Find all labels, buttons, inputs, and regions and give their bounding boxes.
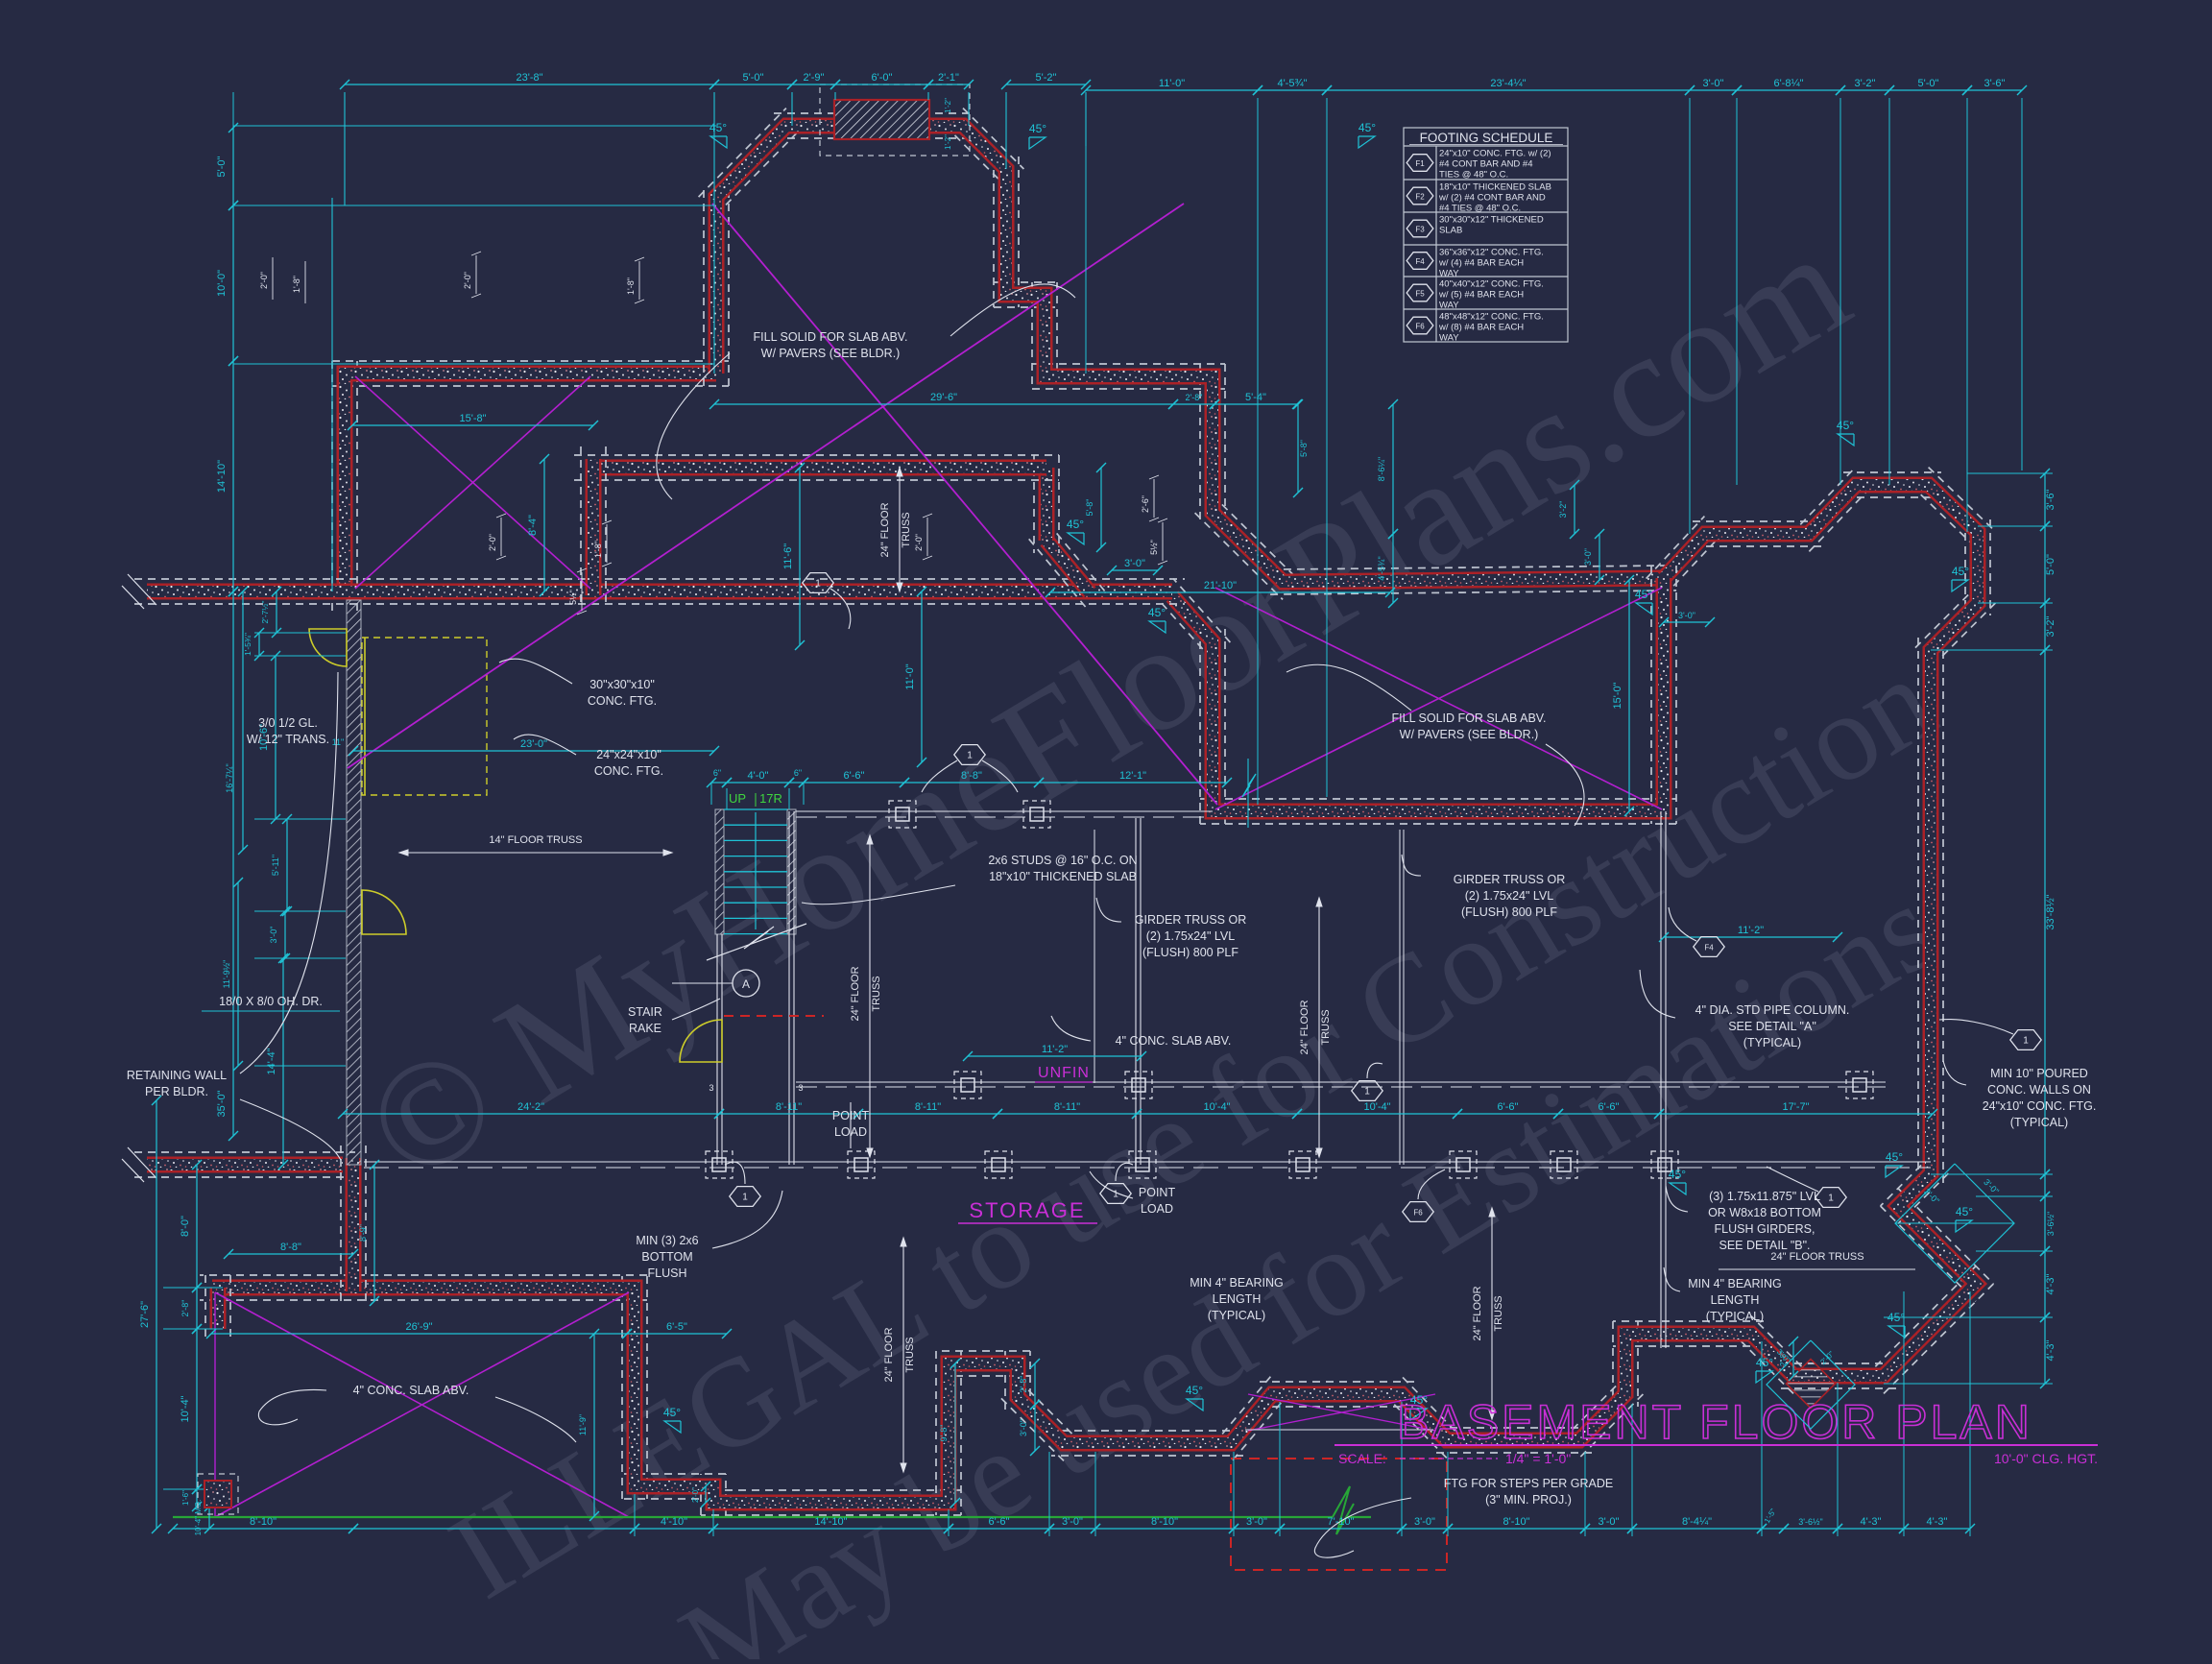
svg-text:TRUSS: TRUSS [871, 976, 882, 1011]
svg-text:8'-11": 8'-11" [1054, 1101, 1080, 1113]
svg-text:3'-6½": 3'-6½" [1798, 1517, 1822, 1527]
svg-text:14'-4": 14'-4" [266, 1048, 277, 1074]
svg-text:F3: F3 [1415, 226, 1425, 234]
svg-text:11'-0": 11'-0" [904, 663, 916, 689]
svg-text:SEE DETAIL "A": SEE DETAIL "A" [1728, 1020, 1816, 1033]
svg-text:WAY: WAY [1439, 301, 1459, 311]
svg-text:8'-8": 8'-8" [280, 1242, 301, 1253]
svg-text:3'-0": 3'-0" [1246, 1516, 1267, 1528]
svg-text:TIES @ 48" O.C.: TIES @ 48" O.C. [1439, 170, 1508, 181]
svg-text:12'-1": 12'-1" [1119, 770, 1146, 782]
svg-text:4'-5¾": 4'-5¾" [1277, 78, 1307, 89]
svg-text:6'-6": 6'-6" [1599, 1101, 1620, 1113]
svg-text:3'-2": 3'-2" [1558, 501, 1568, 518]
svg-text:8'-0": 8'-0" [180, 1216, 191, 1237]
svg-text:3'-0": 3'-0" [1678, 611, 1695, 620]
svg-text:PER BLDR.: PER BLDR. [145, 1085, 208, 1098]
svg-text:29'-6": 29'-6" [930, 392, 957, 403]
svg-text:RAKE: RAKE [629, 1022, 661, 1035]
svg-text:8'-8": 8'-8" [961, 770, 982, 782]
svg-text:11'-2": 11'-2" [1738, 925, 1764, 936]
svg-text:24" FLOOR: 24" FLOOR [1299, 1000, 1310, 1054]
svg-text:F4: F4 [1704, 944, 1714, 953]
svg-text:30"x30"x12" THICKENED: 30"x30"x12" THICKENED [1439, 215, 1544, 226]
svg-text:6'-5": 6'-5" [666, 1321, 687, 1333]
svg-text:(TYPICAL): (TYPICAL) [1706, 1310, 1764, 1323]
svg-text:FLUSH: FLUSH [648, 1266, 687, 1280]
svg-text:33'-8½": 33'-8½" [2045, 894, 2056, 929]
svg-text:23'-8": 23'-8" [516, 72, 542, 84]
svg-text:1'-8": 1'-8" [292, 276, 301, 293]
svg-text:4'-3": 4'-3" [1861, 1516, 1882, 1528]
svg-text:2'-8": 2'-8" [1186, 393, 1203, 402]
svg-text:GIRDER TRUSS OR: GIRDER TRUSS OR [1454, 873, 1565, 886]
svg-text:1: 1 [742, 1193, 748, 1203]
svg-text:45°: 45° [1358, 121, 1376, 134]
svg-text:5'-2": 5'-2" [1036, 72, 1057, 84]
svg-text:24" FLOOR: 24" FLOOR [1472, 1286, 1483, 1340]
svg-text:4'-3": 4'-3" [1927, 1516, 1948, 1528]
svg-text:TRUSS: TRUSS [901, 512, 912, 547]
svg-text:2'-0": 2'-0" [914, 534, 924, 551]
svg-text:1: 1 [2023, 1036, 2029, 1047]
svg-text:4" CONC. SLAB ABV.: 4" CONC. SLAB ABV. [353, 1384, 469, 1397]
svg-text:45°: 45° [1669, 1168, 1686, 1181]
svg-text:10'-0" CLG. HGT.: 10'-0" CLG. HGT. [1994, 1451, 2098, 1466]
svg-text:2'-8": 2'-8" [180, 1300, 190, 1317]
svg-text:W/ PAVERS (SEE BLDR.): W/ PAVERS (SEE BLDR.) [761, 347, 901, 360]
svg-text:8'-10": 8'-10" [250, 1516, 276, 1528]
svg-text:5'-0": 5'-0" [1918, 78, 1939, 89]
svg-text:45°: 45° [1186, 1384, 1203, 1397]
svg-text:24'-2": 24'-2" [517, 1101, 544, 1113]
svg-text:3'-0": 3'-0" [1583, 548, 1593, 566]
svg-text:1'-6": 1'-6" [181, 1490, 190, 1506]
svg-text:3'-0": 3'-0" [269, 927, 278, 944]
svg-text:14'-10": 14'-10" [216, 460, 228, 493]
svg-text:24"x10" CONC. FTG. w/ (2): 24"x10" CONC. FTG. w/ (2) [1439, 149, 1551, 159]
svg-text:4" CONC. SLAB ABV.: 4" CONC. SLAB ABV. [1116, 1034, 1232, 1048]
svg-text:F2: F2 [1415, 193, 1425, 202]
svg-text:9'-8": 9'-8" [939, 1425, 949, 1442]
svg-text:6'-6": 6'-6" [844, 770, 865, 782]
svg-text:2'-0": 2'-0" [463, 272, 472, 289]
svg-text:(TYPICAL): (TYPICAL) [1208, 1309, 1265, 1322]
svg-text:3'-0": 3'-0" [1124, 558, 1145, 569]
svg-text:3'-0": 3'-0" [1414, 1516, 1435, 1528]
svg-text:TRUSS: TRUSS [1493, 1295, 1504, 1331]
svg-text:LENGTH: LENGTH [1711, 1293, 1760, 1307]
svg-text:8'-6¼": 8'-6¼" [1377, 457, 1386, 481]
svg-text:6'-8¼": 6'-8¼" [1773, 78, 1803, 89]
svg-text:F1: F1 [1415, 159, 1425, 168]
svg-text:45°: 45° [1952, 565, 1969, 578]
svg-text:SCALE:: SCALE: [1338, 1451, 1386, 1466]
svg-text:A: A [742, 977, 750, 991]
svg-text:LENGTH: LENGTH [1213, 1292, 1262, 1306]
svg-text:36"x36"x12" CONC. FTG.: 36"x36"x12" CONC. FTG. [1439, 248, 1544, 258]
svg-text:5'-4": 5'-4" [1245, 392, 1266, 403]
svg-text:6'-6": 6'-6" [1498, 1101, 1519, 1113]
svg-text:MIN 4" BEARING: MIN 4" BEARING [1688, 1277, 1782, 1290]
svg-text:3'-0": 3'-0" [1019, 1419, 1028, 1436]
svg-text:3'-6": 3'-6" [2045, 489, 2056, 510]
svg-text:45°: 45° [1635, 588, 1652, 601]
svg-text:45°: 45° [1067, 518, 1084, 531]
svg-text:2'-0": 2'-0" [259, 272, 269, 289]
svg-text:UP: UP [729, 791, 746, 806]
svg-text:24" FLOOR: 24" FLOOR [879, 502, 891, 557]
svg-text:24" FLOOR: 24" FLOOR [883, 1327, 895, 1382]
svg-text:6'-0": 6'-0" [872, 72, 893, 84]
svg-text:10'-0": 10'-0" [216, 270, 228, 297]
svg-text:FLUSH GIRDERS,: FLUSH GIRDERS, [1715, 1222, 1815, 1236]
svg-text:10'-4": 10'-4" [1363, 1101, 1390, 1113]
svg-text:3/0 1/2 GL.: 3/0 1/2 GL. [258, 716, 318, 730]
svg-text:3'-0": 3'-0" [1062, 1516, 1083, 1528]
svg-text:WAY: WAY [1439, 333, 1459, 344]
svg-text:6": 6" [713, 768, 721, 778]
svg-text:40"x40"x12" CONC. FTG.: 40"x40"x12" CONC. FTG. [1439, 279, 1544, 290]
svg-text:11'-0": 11'-0" [1159, 78, 1185, 89]
svg-text:F6: F6 [1413, 1209, 1423, 1218]
svg-text:1: 1 [1364, 1087, 1370, 1097]
svg-text:SEE DETAIL "B".: SEE DETAIL "B". [1719, 1239, 1810, 1252]
svg-text:w/ (4) #4 BAR EACH: w/ (4) #4 BAR EACH [1438, 258, 1524, 269]
svg-text:4'-3": 4'-3" [2045, 1339, 2056, 1361]
svg-text:CONC. FTG.: CONC. FTG. [588, 694, 657, 708]
svg-text:1: 1 [967, 751, 973, 761]
svg-text:BASEMENT FLOOR PLAN: BASEMENT FLOOR PLAN [1397, 1395, 2032, 1449]
svg-text:18/0 X 8/0 OH. DR.: 18/0 X 8/0 OH. DR. [219, 995, 323, 1008]
svg-text:48"x48"x12" CONC. FTG.: 48"x48"x12" CONC. FTG. [1439, 312, 1544, 323]
svg-text:2x6 STUDS @ 16" O.C. ON: 2x6 STUDS @ 16" O.C. ON [988, 854, 1137, 867]
svg-text:8'-10": 8'-10" [1503, 1516, 1529, 1528]
svg-text:45°: 45° [709, 121, 727, 134]
svg-text:1'-8": 1'-8" [626, 277, 636, 295]
svg-text:3'-2": 3'-2" [2045, 615, 2056, 637]
svg-text:F4: F4 [1415, 257, 1425, 266]
svg-text:5½": 5½" [1149, 540, 1159, 555]
svg-text:6": 6" [794, 768, 802, 778]
svg-text:SLAB: SLAB [1439, 226, 1462, 236]
svg-text:CONC. FTG.: CONC. FTG. [594, 764, 663, 778]
svg-text:18"x10" THICKENED SLAB: 18"x10" THICKENED SLAB [1439, 182, 1551, 193]
svg-text:(FLUSH) 800 PLF: (FLUSH) 800 PLF [1461, 905, 1557, 919]
svg-text:w/ (2) #4 CONT BAR AND: w/ (2) #4 CONT BAR AND [1438, 193, 1546, 204]
svg-text:3'-2": 3'-2" [1855, 78, 1876, 89]
svg-text:(2) 1.75x24" LVL: (2) 1.75x24" LVL [1146, 929, 1236, 943]
svg-text:MIN 10" POURED: MIN 10" POURED [1990, 1067, 2088, 1080]
svg-text:23'-0": 23'-0" [520, 738, 547, 750]
svg-text:MIN (3) 2x6: MIN (3) 2x6 [636, 1234, 698, 1247]
svg-text:24" FLOOR TRUSS: 24" FLOOR TRUSS [1770, 1251, 1863, 1263]
svg-text:17'-7": 17'-7" [1782, 1101, 1809, 1113]
svg-text:14'-10": 14'-10" [814, 1516, 847, 1528]
svg-text:30"x30"x10": 30"x30"x10" [589, 678, 655, 691]
svg-text:5'-11": 5'-11" [271, 855, 280, 876]
svg-text:4'-0": 4'-0" [748, 770, 769, 782]
svg-text:2'-9": 2'-9" [804, 72, 825, 84]
svg-text:45°: 45° [1756, 1356, 1773, 1369]
svg-text:FILL SOLID FOR SLAB ABV.: FILL SOLID FOR SLAB ABV. [754, 330, 908, 344]
svg-text:45°: 45° [1029, 122, 1046, 135]
svg-text:27'-6": 27'-6" [139, 1301, 151, 1328]
svg-text:1: 1 [815, 579, 821, 590]
svg-text:1: 1 [1113, 1190, 1118, 1200]
svg-text:26'-9": 26'-9" [405, 1321, 432, 1333]
svg-text:45°: 45° [1148, 606, 1166, 619]
svg-text:8'-9": 8'-9" [358, 1224, 368, 1242]
svg-text:TRUSS: TRUSS [1320, 1009, 1332, 1045]
svg-text:8'-11": 8'-11" [776, 1101, 802, 1113]
svg-text:BOTTOM: BOTTOM [641, 1250, 692, 1264]
svg-text:4'-3": 4'-3" [2045, 1273, 2056, 1294]
svg-text:15'-8": 15'-8" [459, 413, 486, 424]
svg-text:7'-10": 7'-10" [1327, 1516, 1354, 1528]
svg-text:17R: 17R [759, 791, 782, 806]
svg-text:35'-0": 35'-0" [216, 1090, 228, 1117]
svg-text:STORAGE: STORAGE [969, 1198, 1085, 1222]
svg-text:(3) 1.75x11.875" LVL: (3) 1.75x11.875" LVL [1709, 1190, 1820, 1203]
svg-text:#4 CONT BAR AND #4: #4 CONT BAR AND #4 [1439, 159, 1533, 170]
svg-text:5'-8": 5'-8" [1299, 440, 1309, 457]
svg-text:4'-10": 4'-10" [661, 1516, 687, 1528]
svg-text:RETAINING WALL: RETAINING WALL [127, 1069, 227, 1082]
svg-text:2'-0": 2'-0" [691, 1487, 700, 1503]
svg-text:1'-2": 1'-2" [944, 134, 952, 150]
svg-text:2'-8": 2'-8" [1019, 1376, 1028, 1393]
svg-text:GIRDER TRUSS OR: GIRDER TRUSS OR [1135, 913, 1246, 927]
svg-text:2'-0": 2'-0" [488, 534, 497, 551]
svg-text:WAY: WAY [1439, 269, 1459, 279]
svg-text:1'-8": 1'-8" [593, 541, 603, 558]
svg-text:MIN 4" BEARING: MIN 4" BEARING [1190, 1276, 1284, 1290]
svg-text:45°: 45° [1886, 1150, 1903, 1164]
svg-text:1'-2": 1'-2" [944, 98, 952, 113]
svg-text:W/ 12" TRANS.: W/ 12" TRANS. [247, 733, 329, 746]
svg-text:OR W8x18 BOTTOM: OR W8x18 BOTTOM [1708, 1206, 1821, 1219]
svg-text:(3" MIN. PROJ.): (3" MIN. PROJ.) [1485, 1493, 1572, 1507]
svg-text:F5: F5 [1415, 290, 1425, 299]
svg-text:11'-9½": 11'-9½" [222, 960, 231, 989]
svg-text:3'-6½": 3'-6½" [2046, 1212, 2056, 1236]
svg-text:10'-4": 10'-4" [1203, 1101, 1230, 1113]
svg-text:24"x10" CONC. FTG.: 24"x10" CONC. FTG. [1983, 1099, 2097, 1113]
svg-text:5½": 5½" [568, 590, 578, 605]
svg-text:11'-6": 11'-6" [782, 543, 794, 569]
svg-text:8'-10": 8'-10" [1151, 1516, 1178, 1528]
svg-text:15'-0": 15'-0" [1612, 682, 1623, 709]
svg-text:6'-6": 6'-6" [989, 1516, 1010, 1528]
svg-text:#4 TIES @ 48" O.C.: #4 TIES @ 48" O.C. [1439, 204, 1521, 214]
svg-text:5'-8": 5'-8" [1085, 499, 1094, 517]
svg-text:3'-0": 3'-0" [1703, 78, 1724, 89]
svg-text:14" FLOOR TRUSS: 14" FLOOR TRUSS [489, 834, 582, 846]
svg-text:TRUSS: TRUSS [904, 1337, 916, 1372]
svg-text:w/ (5) #4 BAR EACH: w/ (5) #4 BAR EACH [1438, 290, 1524, 301]
svg-text:23'-4¼": 23'-4¼" [1490, 78, 1526, 89]
svg-text:24"x24"x10": 24"x24"x10" [596, 748, 661, 761]
svg-text:LOAD: LOAD [1141, 1202, 1173, 1216]
svg-text:11'-9": 11'-9" [578, 1414, 588, 1435]
svg-text:3: 3 [798, 1083, 803, 1093]
svg-text:w/ (8) #4 BAR EACH: w/ (8) #4 BAR EACH [1438, 323, 1524, 333]
svg-text:4" DIA. STD PIPE COLUMN.: 4" DIA. STD PIPE COLUMN. [1695, 1003, 1850, 1017]
svg-text:(TYPICAL): (TYPICAL) [1743, 1036, 1801, 1049]
svg-text:(TYPICAL): (TYPICAL) [2010, 1116, 2068, 1129]
svg-text:5'-0": 5'-0" [743, 72, 764, 84]
svg-text:CONC. WALLS ON: CONC. WALLS ON [1987, 1083, 2091, 1097]
svg-text:45°: 45° [663, 1406, 681, 1419]
svg-text:STAIR: STAIR [628, 1005, 662, 1019]
svg-text:11'-2": 11'-2" [1042, 1044, 1068, 1055]
svg-text:(2) 1.75x24" LVL: (2) 1.75x24" LVL [1465, 889, 1554, 903]
svg-text:FILL SOLID FOR SLAB ABV.: FILL SOLID FOR SLAB ABV. [1392, 711, 1547, 725]
svg-text:24" FLOOR: 24" FLOOR [850, 966, 861, 1021]
svg-text:5'-0": 5'-0" [216, 156, 228, 177]
svg-text:1'-5¾": 1'-5¾" [243, 633, 252, 656]
svg-text:16'-7¼": 16'-7¼" [225, 763, 234, 792]
svg-text:POINT: POINT [1139, 1186, 1176, 1199]
svg-text:45°: 45° [1956, 1205, 1973, 1218]
svg-text:3: 3 [709, 1083, 713, 1093]
svg-text:2'-1": 2'-1" [938, 72, 959, 84]
svg-text:45°: 45° [1837, 419, 1854, 432]
svg-text:F6: F6 [1415, 323, 1425, 331]
svg-text:1: 1 [1828, 1194, 1834, 1204]
svg-text:(FLUSH) 800 PLF: (FLUSH) 800 PLF [1142, 946, 1238, 959]
svg-text:UNFIN: UNFIN [1038, 1065, 1090, 1081]
svg-text:5'-0": 5'-0" [2045, 554, 2056, 575]
svg-text:FTG FOR STEPS PER GRADE: FTG FOR STEPS PER GRADE [1444, 1477, 1613, 1490]
svg-text:1/4" = 1'-0": 1/4" = 1'-0" [1505, 1451, 1571, 1466]
svg-text:18"x10" THICKENED SLAB: 18"x10" THICKENED SLAB [989, 870, 1137, 883]
svg-text:8'-11": 8'-11" [915, 1101, 941, 1113]
svg-text:8'-4": 8'-4" [527, 515, 539, 536]
svg-text:3'-6": 3'-6" [1984, 78, 2006, 89]
svg-text:45°: 45° [1887, 1311, 1905, 1324]
svg-text:4'-5¾": 4'-5¾" [1377, 556, 1386, 580]
svg-text:2'-7½": 2'-7½" [260, 600, 270, 623]
svg-text:21'-10": 21'-10" [1204, 580, 1237, 591]
svg-text:FOOTING SCHEDULE: FOOTING SCHEDULE [1420, 131, 1553, 145]
svg-text:3'-0": 3'-0" [1599, 1516, 1620, 1528]
svg-text:W/ PAVERS (SEE BLDR.): W/ PAVERS (SEE BLDR.) [1400, 728, 1539, 741]
svg-text:11": 11" [332, 737, 345, 747]
svg-text:2'-6": 2'-6" [1141, 495, 1150, 513]
svg-text:10'-4": 10'-4" [180, 1395, 191, 1422]
svg-text:8'-4¼": 8'-4¼" [1682, 1516, 1712, 1528]
